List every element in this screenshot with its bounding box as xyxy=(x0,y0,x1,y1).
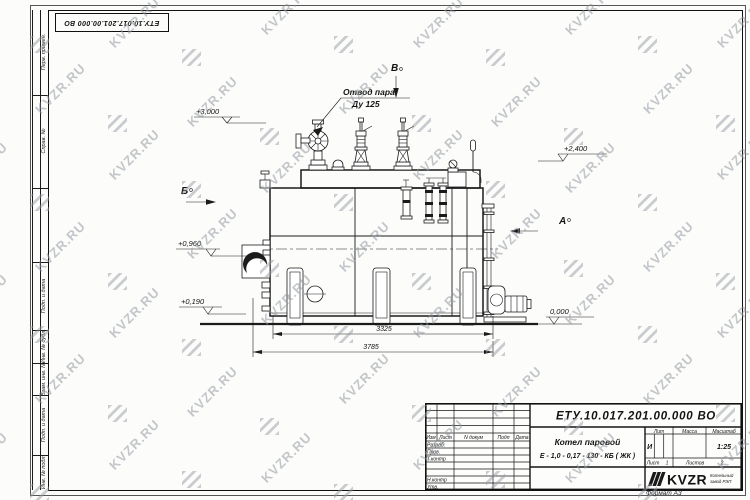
drum-end-fittings xyxy=(448,140,481,187)
margin-label-inv-podl: Инв. № подл. xyxy=(41,455,47,489)
watermark-text: KVZR.RU xyxy=(0,271,11,327)
logo-sub1: Котельный xyxy=(710,473,734,478)
col-list: Лист xyxy=(438,435,452,441)
steam-outlet-callout-line2: Ду 125 xyxy=(351,99,380,109)
view-label-b-text: Б xyxy=(181,186,188,197)
elevation-0960-text: +0,960 xyxy=(178,239,202,248)
dome-fitting xyxy=(332,160,344,170)
boiler-drawing: 3325 3785 +3,000 +2,400 +0,960 xyxy=(160,60,640,370)
massa-header: Масса xyxy=(682,429,697,435)
elevation-0000-text: 0,000 xyxy=(550,307,570,316)
row-prov: Пров. xyxy=(427,450,440,456)
sheets-label: Листов xyxy=(685,461,705,467)
product-name-line2: Е - 1,0 - 0,17 - 130 - КБ ( ЖК ) xyxy=(540,453,636,460)
scale-value: 1:25 xyxy=(717,444,731,451)
elevation-0190: +0,190 xyxy=(179,297,246,314)
pump-unit xyxy=(484,286,531,322)
steam-outlet-callout-line1: Отвод пара xyxy=(343,87,395,97)
product-name-line1: Котел паровой xyxy=(555,437,621,447)
watermark-text: KVZR.RU xyxy=(0,0,11,38)
view-label-b: Б xyxy=(181,186,216,205)
logo-text: KVZR xyxy=(667,472,707,488)
lit-header: Лит xyxy=(653,429,664,435)
margin-sep xyxy=(32,188,48,189)
elevation-2400-text: +2,400 xyxy=(564,144,588,153)
view-label-a: А xyxy=(510,216,570,234)
watermark-text: KVZR.RU xyxy=(0,139,11,195)
sheets-value: 2 xyxy=(720,461,724,467)
view-label-a-text: А xyxy=(558,216,566,227)
row-razrab: Разраб. xyxy=(427,443,445,449)
dimension-3785-text: 3785 xyxy=(363,344,379,351)
drawing-sheet: Перв. примен. Справ. № Подп. и дата Инв.… xyxy=(0,0,750,500)
row-utv: Утв. xyxy=(427,485,438,491)
logo-sub2: завод РЭП xyxy=(709,479,732,484)
steam-outlet-valve xyxy=(296,120,328,170)
safety-valve-2 xyxy=(394,118,414,170)
dimension-3325-text: 3325 xyxy=(376,326,392,333)
title-block: Изм Лист N докум Подп Дата Разраб. Пров.… xyxy=(425,403,742,491)
margin-label-perv-primen: Перв. примен. xyxy=(41,34,47,71)
elevation-0190-text: +0,190 xyxy=(181,297,205,306)
view-label-v-text: В xyxy=(391,63,398,74)
col-data: Дата xyxy=(514,435,528,441)
format-label: Формат А3 xyxy=(646,490,682,497)
sheet-value: 1 xyxy=(666,461,669,467)
margin-column-line xyxy=(32,10,33,490)
corner-doc-number-text: ЕТУ.10.017.201.00.000 ВО xyxy=(64,19,159,26)
col-ndokum: N докум xyxy=(464,435,483,441)
margin-sep xyxy=(32,262,48,263)
elevation-0960: +0,960 xyxy=(176,239,252,256)
sheet-label: Лист xyxy=(646,461,660,467)
safety-valve-1 xyxy=(352,118,372,170)
scale-header: Масштаб xyxy=(712,429,736,435)
elevation-2400: +2,400 xyxy=(538,144,607,161)
watermark-text: KVZR.RU xyxy=(0,429,11,485)
col-izm: Изм xyxy=(426,435,436,441)
margin-label-inv-dubl: Инв. № дубл. xyxy=(41,329,47,363)
row-nkontr: Н.контр xyxy=(427,478,447,484)
elevation-3000: +3,000 xyxy=(194,107,266,123)
water-level-gauges xyxy=(401,178,448,223)
margin-label-podp-data-2: Подп. и дата xyxy=(41,408,47,442)
elevation-0000: 0,000 xyxy=(536,307,594,324)
margin-sep xyxy=(32,95,48,96)
col-podp: Подп xyxy=(498,435,510,441)
margin-label-podp-data-1: Подп. и дата xyxy=(41,279,47,313)
doc-number: ЕТУ.10.017.201.00.000 ВО xyxy=(556,411,716,423)
margin-label-vzam-inv: Взам. инв. № xyxy=(41,362,47,396)
burner-box xyxy=(242,171,270,311)
elevation-3000-text: +3,000 xyxy=(196,107,220,116)
corner-doc-number-stamp: ЕТУ.10.017.201.00.000 ВО xyxy=(55,13,169,32)
row-tkontr: Т.контр xyxy=(427,457,446,463)
margin-label-sprav-n: Справ. № xyxy=(41,129,47,154)
sight-hole xyxy=(304,286,326,302)
